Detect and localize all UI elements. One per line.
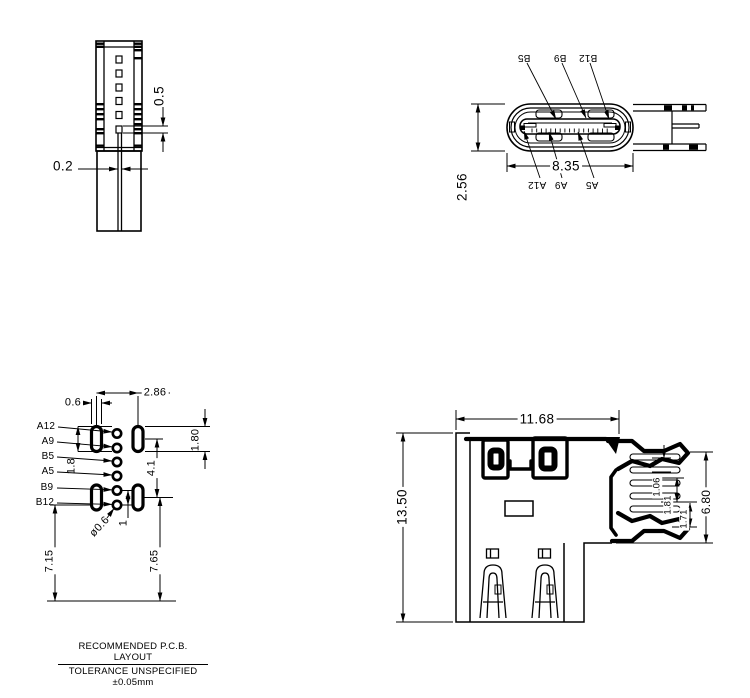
dim-label-front-width: 8.35 xyxy=(550,159,582,173)
title-notes: RECOMMENDED P.C.B. LAYOUT TOLERANCE UNSP… xyxy=(58,641,208,688)
dim-label-leg-b: 1.81 xyxy=(663,493,673,516)
dim-label-pad-width: 0.6 xyxy=(65,398,81,409)
shell-corner-fold xyxy=(604,437,620,454)
technical-drawing-sheet: 0.5 0.2 8.35 2.56 B5 B9 B12 A12 A9 A5 A1… xyxy=(0,0,750,698)
dim-label-pin-gap: 0.2 xyxy=(53,159,73,173)
dim-2_56 xyxy=(471,104,505,151)
shell-windows xyxy=(483,438,567,478)
dim-label-pad-len-right: 1.80 xyxy=(191,429,202,452)
dim-label-leg-c: 1.71 xyxy=(679,507,689,530)
dim-label-leg-a: 1.06 xyxy=(652,475,662,498)
pin-label-a9: A9 xyxy=(555,179,568,189)
solder-tails xyxy=(480,549,558,618)
dim-label-col-pitch: 2.86 xyxy=(142,388,169,399)
dim-label-leg-span: 6.80 xyxy=(700,488,712,517)
mount-rails xyxy=(633,105,706,151)
drawing-linework xyxy=(0,0,750,698)
dim-label-mount-height: 13.50 xyxy=(395,487,409,527)
pad-label-a12: A12 xyxy=(37,422,55,432)
pad-label-b9: B9 xyxy=(41,483,54,493)
pin-label-b12: B12 xyxy=(579,52,597,62)
pin-label-b5: B5 xyxy=(518,52,531,62)
note-tolerance: TOLERANCE UNSPECIFIED ±0.05mm xyxy=(58,666,208,688)
front-view-drawing xyxy=(471,63,706,178)
pcb-layout-drawing xyxy=(47,393,210,601)
dim-0_6 xyxy=(84,399,112,424)
pin-label-a12: A12 xyxy=(528,179,546,189)
dim-0_5 xyxy=(123,107,168,152)
dim-hole-leader xyxy=(107,509,114,519)
pad-label-a5: A5 xyxy=(42,467,55,477)
dim-label-hole-pitch: 1 xyxy=(119,520,130,526)
side-view-drawing xyxy=(78,41,168,231)
shell-hatch-ticks xyxy=(96,43,142,147)
tongue xyxy=(520,119,620,134)
dim-label-front-height: 2.56 xyxy=(455,173,469,201)
hole-pads xyxy=(113,429,121,509)
dim-label-row-span: 4.1 xyxy=(147,458,158,478)
pad-label-b5: B5 xyxy=(42,452,55,462)
dim-label-mount-width: 11.68 xyxy=(518,412,557,426)
pin-label-b9: B9 xyxy=(554,52,567,62)
pin-label-a5: A5 xyxy=(586,179,599,189)
dim-label-right-edge: 7.65 xyxy=(150,548,161,575)
note-pcb-layout: RECOMMENDED P.C.B. LAYOUT xyxy=(58,641,208,665)
pad-label-b12: B12 xyxy=(36,498,54,508)
dim-label-left-edge: 7.15 xyxy=(45,548,56,575)
side-window xyxy=(505,501,533,516)
oval-pads xyxy=(92,427,144,511)
contact-ticks xyxy=(532,129,607,133)
pad-label-a9: A9 xyxy=(42,437,55,447)
dim-label-pad-len-left: 1.8 xyxy=(67,458,78,474)
contact-pins xyxy=(116,56,122,133)
dim-7_15 xyxy=(50,505,90,601)
dim-label-pin-height: 0.5 xyxy=(152,86,166,106)
dim-13_50 xyxy=(396,433,453,622)
